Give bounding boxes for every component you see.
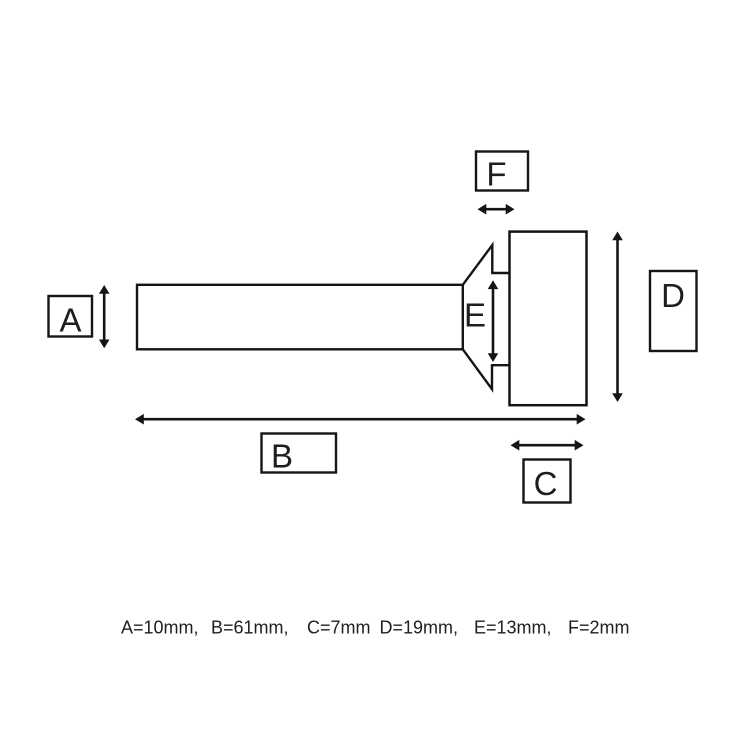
svg-text:F=2mm: F=2mm [568,617,630,637]
svg-text:A: A [59,302,81,339]
svg-text:E=13mm,: E=13mm, [474,617,552,637]
svg-text:B: B [271,438,293,475]
svg-text:B=61mm,: B=61mm, [211,617,289,637]
svg-text:C: C [534,465,558,502]
svg-text:D: D [661,277,685,314]
svg-text:D=19mm,: D=19mm, [380,617,459,637]
svg-text:E: E [464,297,486,334]
svg-text:A=10mm,: A=10mm, [121,617,199,637]
svg-text:C=7mm: C=7mm [307,617,371,637]
svg-text:F: F [486,156,506,193]
